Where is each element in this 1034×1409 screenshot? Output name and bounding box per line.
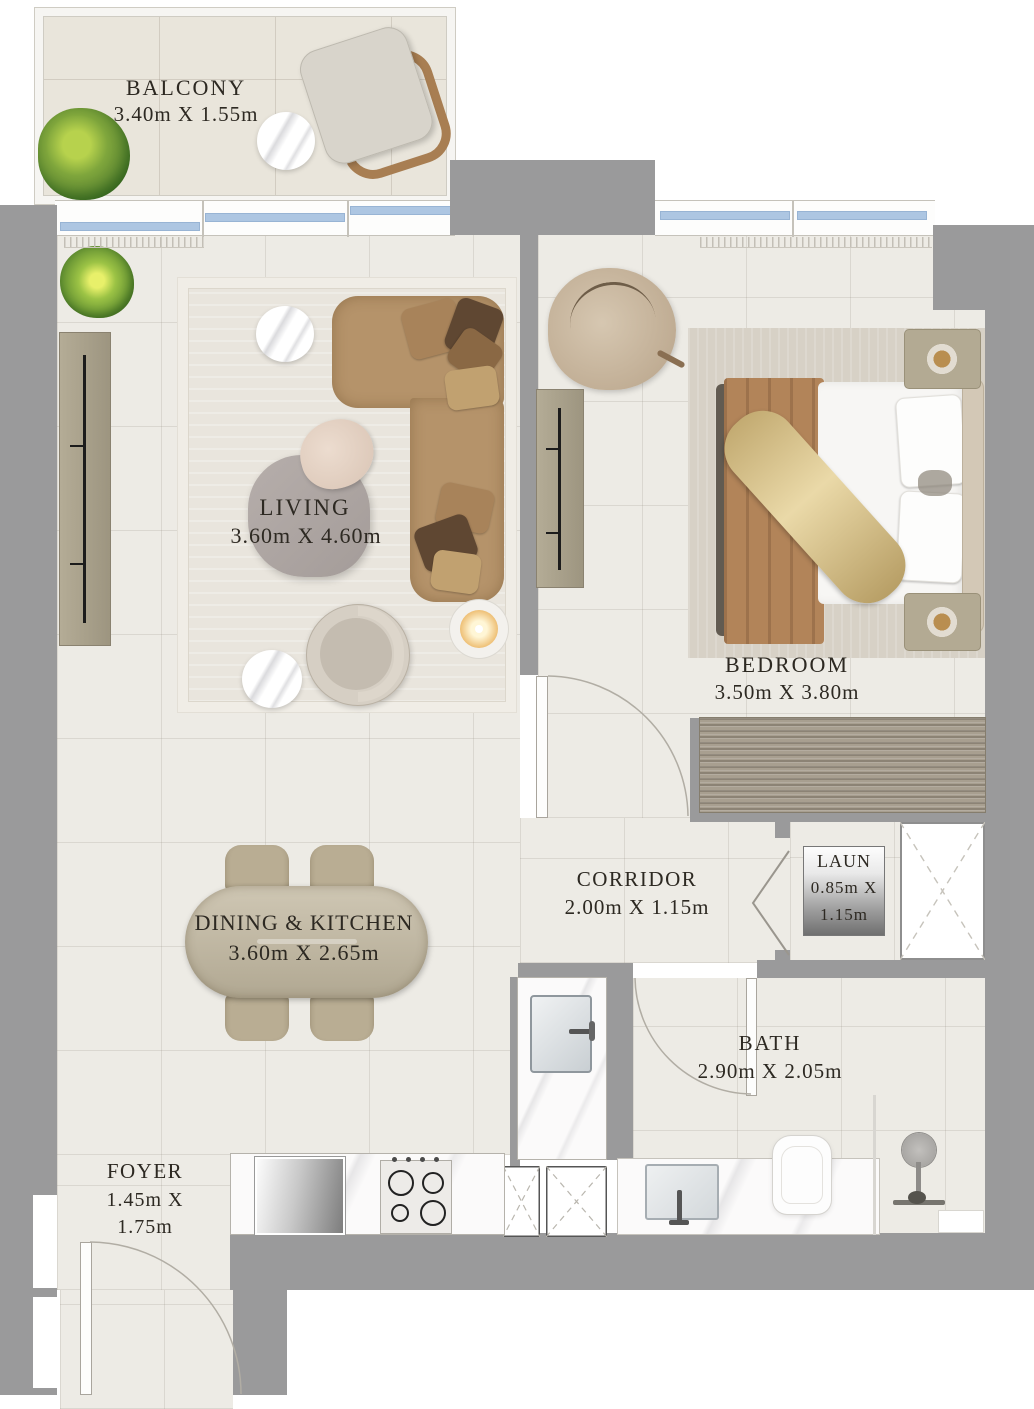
left-shaft-box bbox=[33, 1297, 57, 1388]
nightstand-lamp bbox=[925, 342, 959, 376]
stove-burner bbox=[422, 1172, 444, 1194]
bath-sink bbox=[645, 1164, 719, 1220]
fridge bbox=[255, 1157, 345, 1235]
stove-knob bbox=[406, 1157, 411, 1162]
tv-console bbox=[60, 333, 110, 645]
foyer-dims-line2: 1.75m bbox=[117, 1216, 173, 1238]
window-glass bbox=[661, 212, 789, 219]
laundry-dims-line2: 1.15m bbox=[820, 906, 868, 925]
tv-console-handle bbox=[70, 563, 86, 565]
stove bbox=[380, 1160, 452, 1234]
window-glass bbox=[206, 214, 344, 221]
wall-left-fill bbox=[33, 1288, 57, 1297]
bedroom-door-leaf bbox=[536, 676, 548, 818]
floor-lamp-center bbox=[475, 625, 483, 633]
stove-burner bbox=[420, 1200, 446, 1226]
foyer-dims-line1: 1.45m X bbox=[107, 1189, 184, 1211]
sink-counter bbox=[517, 977, 607, 1160]
wall-corridor-bath bbox=[518, 963, 633, 978]
dining-chair bbox=[310, 993, 374, 1041]
bed-pillow-gap bbox=[918, 470, 952, 496]
wall-top-column bbox=[450, 160, 655, 235]
dresser-rail bbox=[558, 408, 561, 570]
bedroom-closet bbox=[700, 718, 985, 812]
curtain-track bbox=[700, 237, 932, 248]
wall-top-right-corner bbox=[933, 225, 1034, 310]
window-glass bbox=[351, 207, 450, 214]
living-label: LIVING bbox=[259, 495, 350, 520]
laundry-label: LAUN bbox=[817, 852, 871, 872]
dining-kitchen-label: DINING & KITCHEN bbox=[195, 911, 414, 935]
balcony-label: BALCONY bbox=[126, 76, 246, 100]
bedroom-label: BEDROOM bbox=[725, 653, 849, 677]
wall-left-fill bbox=[33, 1388, 57, 1395]
shower-glass bbox=[873, 1095, 876, 1235]
nightstand bbox=[905, 594, 980, 650]
stove-burner bbox=[391, 1204, 409, 1222]
stove-burner bbox=[388, 1170, 414, 1196]
kitchen-shaft-large bbox=[546, 1166, 607, 1237]
stove-knob bbox=[392, 1157, 397, 1162]
corridor-dims: 2.00m X 1.15m bbox=[565, 896, 710, 919]
foyer-label: FOYER bbox=[107, 1160, 183, 1183]
wall-left bbox=[0, 205, 57, 1160]
window-mullion bbox=[792, 201, 794, 237]
wall-right bbox=[985, 310, 1034, 1290]
window-glass bbox=[61, 223, 199, 230]
sofa-pillow bbox=[443, 365, 500, 412]
living-armchair bbox=[306, 604, 410, 706]
balcony-dims: 3.40m X 1.55m bbox=[114, 103, 259, 126]
bath-faucet-handle bbox=[669, 1220, 689, 1225]
entrance-door-leaf bbox=[80, 1242, 92, 1395]
wall-left-lower bbox=[0, 1160, 33, 1395]
stove-knob bbox=[420, 1157, 425, 1162]
window-glass bbox=[798, 212, 926, 219]
curtain-track bbox=[64, 237, 204, 248]
bath-faucet bbox=[677, 1190, 682, 1224]
coffee-table-marble bbox=[242, 650, 302, 708]
balcony-side-table bbox=[257, 112, 315, 170]
kitchen-shaft-small bbox=[503, 1166, 540, 1237]
nightstand bbox=[905, 330, 980, 388]
floor-lamp bbox=[450, 600, 508, 658]
wall-bedroom-closet-jamb bbox=[690, 718, 700, 810]
kitchen-faucet-base bbox=[589, 1021, 595, 1041]
wall-entrance-right bbox=[233, 1290, 287, 1395]
tv-console-rail bbox=[83, 355, 86, 623]
living-dims: 3.60m X 4.60m bbox=[230, 524, 381, 548]
wall-bottom bbox=[230, 1233, 985, 1290]
dining-kitchen-dims: 3.60m X 2.65m bbox=[228, 941, 379, 965]
dining-chair bbox=[225, 993, 289, 1041]
bedroom-dresser bbox=[537, 390, 583, 587]
bed-pillow bbox=[896, 490, 967, 583]
dresser-handle bbox=[546, 448, 561, 450]
bath-dims: 2.90m X 2.05m bbox=[698, 1060, 843, 1083]
wall-bath-top bbox=[757, 960, 985, 978]
wall-living-bedroom bbox=[520, 235, 538, 675]
corner-plant bbox=[60, 246, 134, 318]
laundry-dims-line1: 0.85m X bbox=[811, 879, 878, 898]
bath-vanity bbox=[617, 1158, 880, 1235]
toilet bbox=[773, 1136, 831, 1214]
laundry-jamb-top bbox=[775, 822, 790, 838]
shower-valve-knob bbox=[908, 1191, 926, 1204]
wall-left-fill bbox=[33, 1160, 57, 1195]
bedroom-window bbox=[655, 200, 935, 236]
laundry-shaft bbox=[900, 822, 985, 960]
coffee-table-marble bbox=[256, 306, 314, 362]
dresser-handle bbox=[546, 532, 561, 534]
stove-knob bbox=[434, 1157, 439, 1162]
window-mullion bbox=[202, 201, 204, 237]
bedroom-dims: 3.50m X 3.80m bbox=[715, 681, 860, 704]
kitchen-sink bbox=[530, 995, 592, 1073]
sofa-pillow bbox=[429, 549, 482, 595]
wall-sink-bath bbox=[607, 977, 633, 1160]
floor-plan: BALCONY 3.40m X 1.55m LIVING 3.60m X 4.6… bbox=[0, 0, 1034, 1409]
bath-label: BATH bbox=[739, 1032, 802, 1055]
bedroom-armchair bbox=[548, 268, 683, 393]
toilet-seat bbox=[781, 1146, 823, 1204]
left-shaft-box bbox=[33, 1195, 57, 1288]
tv-console-handle bbox=[70, 445, 86, 447]
living-window bbox=[55, 200, 455, 236]
bath-niche bbox=[938, 1210, 984, 1233]
window-mullion bbox=[347, 201, 349, 237]
corridor-label: CORRIDOR bbox=[577, 868, 698, 891]
nightstand-lamp bbox=[925, 605, 959, 639]
